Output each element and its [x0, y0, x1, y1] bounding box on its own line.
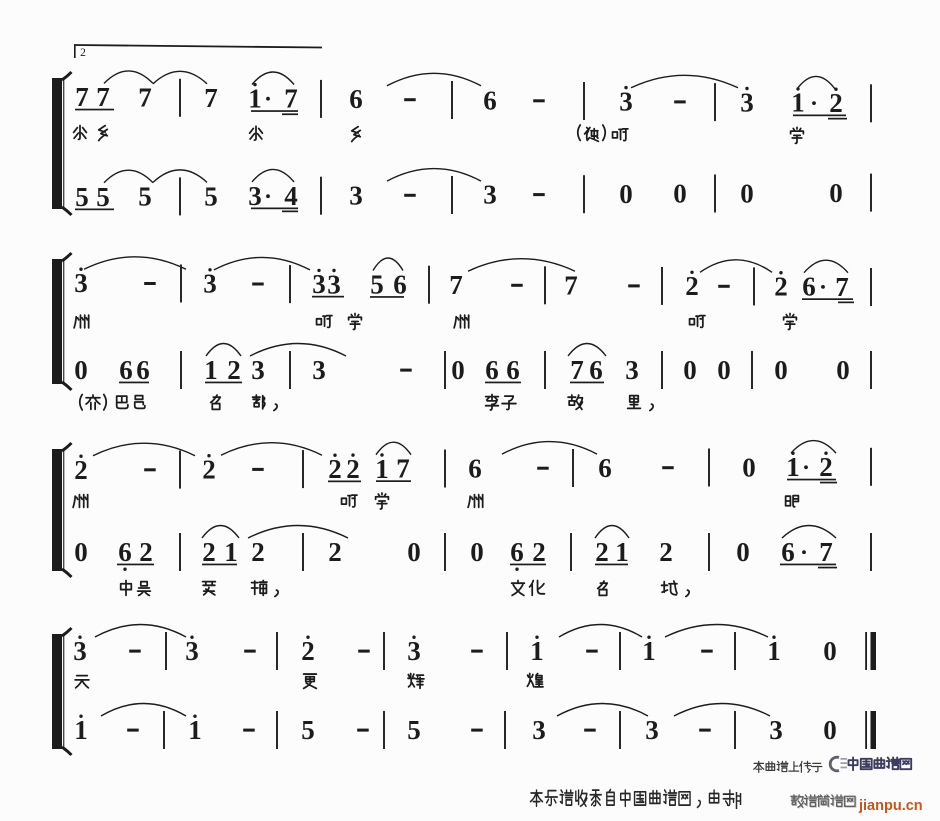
svg-text:3: 3 [532, 715, 546, 745]
svg-text:3: 3 [312, 355, 326, 385]
svg-text:0: 0 [740, 178, 754, 208]
svg-text:3: 3 [73, 636, 87, 666]
svg-text:2: 2 [328, 537, 342, 567]
svg-text:2: 2 [202, 455, 216, 485]
svg-text:5: 5 [301, 715, 315, 745]
svg-text:5: 5 [75, 182, 89, 212]
svg-text:7: 7 [449, 270, 463, 300]
svg-text:4: 4 [284, 181, 298, 211]
svg-text:2: 2 [685, 271, 699, 301]
svg-text:6: 6 [802, 272, 816, 302]
svg-text:3: 3 [483, 180, 497, 210]
svg-text:0: 0 [829, 178, 843, 208]
svg-text:6: 6 [349, 84, 363, 114]
svg-text:3: 3 [619, 86, 633, 116]
svg-text:5: 5 [96, 182, 110, 212]
svg-text:7: 7 [96, 82, 110, 112]
svg-text:1: 1 [786, 452, 800, 482]
svg-text:1: 1 [248, 83, 262, 113]
svg-text:0: 0 [774, 355, 788, 385]
svg-text:5: 5 [204, 181, 218, 211]
svg-text:1: 1 [642, 636, 656, 666]
svg-text:6: 6 [589, 355, 603, 385]
svg-text:3: 3 [327, 269, 341, 299]
svg-text:1: 1 [791, 88, 805, 118]
svg-text:3: 3 [74, 268, 88, 298]
svg-text:6: 6 [510, 537, 524, 567]
svg-text:3: 3 [769, 715, 783, 745]
svg-text:jianpu.cn: jianpu.cn [858, 798, 923, 814]
svg-text:3: 3 [185, 636, 199, 666]
svg-text:2: 2 [80, 47, 86, 59]
svg-text:6: 6 [483, 85, 497, 115]
svg-text:2: 2 [227, 355, 241, 385]
svg-text:3: 3 [645, 715, 659, 745]
svg-text:7: 7 [819, 537, 833, 567]
svg-text:3: 3 [248, 181, 262, 211]
svg-text:0: 0 [823, 636, 837, 666]
svg-text:1: 1 [375, 454, 389, 484]
svg-text:3: 3 [312, 269, 326, 299]
svg-text:3: 3 [625, 355, 639, 385]
svg-text:2: 2 [74, 455, 88, 485]
svg-text:0: 0 [470, 537, 484, 567]
svg-text:3: 3 [251, 355, 265, 385]
svg-text:6: 6 [781, 537, 795, 567]
svg-text:0: 0 [619, 179, 633, 209]
svg-text:0: 0 [736, 537, 750, 567]
svg-text:0: 0 [74, 355, 88, 385]
svg-text:1: 1 [204, 355, 218, 385]
svg-text:2: 2 [251, 537, 265, 567]
svg-text:0: 0 [683, 355, 697, 385]
svg-text:7: 7 [570, 355, 584, 385]
svg-text:7: 7 [138, 83, 152, 113]
svg-text:6: 6 [506, 355, 520, 385]
svg-text:0: 0 [74, 537, 88, 567]
svg-text:2: 2 [532, 537, 546, 567]
svg-text:6: 6 [598, 453, 612, 483]
svg-text:1: 1 [74, 715, 88, 745]
svg-text:7: 7 [396, 454, 410, 484]
svg-text:0: 0 [673, 179, 687, 209]
svg-text:6: 6 [118, 537, 132, 567]
svg-text:2: 2 [829, 88, 843, 118]
svg-text:2: 2 [595, 537, 609, 567]
svg-text:3: 3 [203, 269, 217, 299]
svg-text:2: 2 [346, 454, 360, 484]
svg-text:2: 2 [659, 537, 673, 567]
svg-text:1: 1 [188, 715, 202, 745]
svg-text:2: 2 [139, 537, 153, 567]
svg-text:6: 6 [393, 270, 407, 300]
svg-text:0: 0 [742, 452, 756, 482]
svg-text:3: 3 [407, 636, 421, 666]
svg-text:7: 7 [284, 84, 298, 114]
svg-text:0: 0 [717, 355, 731, 385]
svg-text:0: 0 [407, 537, 421, 567]
svg-text:6: 6 [136, 355, 150, 385]
svg-text:7: 7 [75, 82, 89, 112]
svg-text:2: 2 [328, 454, 342, 484]
svg-text:6: 6 [485, 355, 499, 385]
svg-text:5: 5 [370, 270, 384, 300]
svg-text:5: 5 [138, 182, 152, 212]
svg-text:1: 1 [767, 636, 781, 666]
svg-text:1: 1 [530, 636, 544, 666]
svg-text:7: 7 [204, 83, 218, 113]
svg-text:2: 2 [819, 452, 833, 482]
svg-text:0: 0 [823, 715, 837, 745]
svg-text:7: 7 [835, 272, 849, 302]
svg-text:2: 2 [202, 537, 216, 567]
svg-text:1: 1 [615, 537, 629, 567]
svg-text:2: 2 [301, 636, 315, 666]
svg-text:6: 6 [119, 355, 133, 385]
svg-text:0: 0 [451, 355, 465, 385]
svg-text:7: 7 [564, 271, 578, 301]
svg-text:0: 0 [836, 355, 850, 385]
svg-text:6: 6 [468, 453, 482, 483]
svg-text:1: 1 [224, 537, 238, 567]
svg-text:2: 2 [774, 272, 788, 302]
svg-text:3: 3 [740, 87, 754, 117]
svg-text:5: 5 [407, 715, 421, 745]
svg-text:3: 3 [349, 181, 363, 211]
